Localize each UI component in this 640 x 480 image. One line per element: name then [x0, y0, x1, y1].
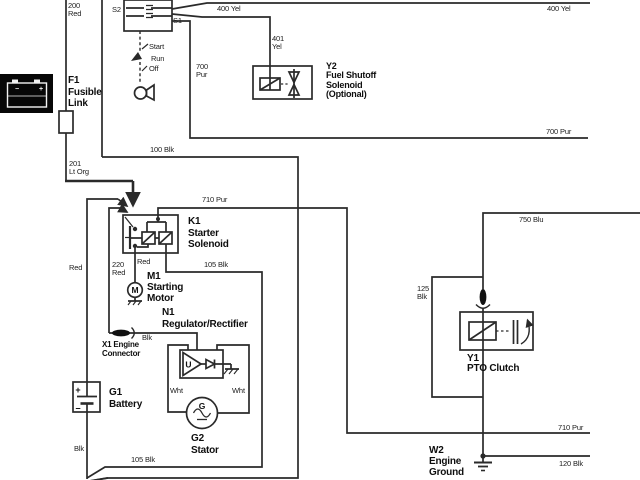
- motor-letter: M: [131, 285, 138, 295]
- label-n1-regulator-rectifier: N1 Regulator/Rectifier: [162, 307, 248, 330]
- ignition-switch-icon: [124, 0, 172, 31]
- wire-125-blk: [432, 277, 483, 397]
- label-wire-wht-right: Wht: [232, 387, 245, 395]
- label-k1-starter-solenoid: K1 Starter Solenoid: [188, 216, 229, 251]
- label-key-start: Start: [149, 43, 164, 51]
- label-wire-220-red: 220 Red: [112, 261, 125, 277]
- label-w2-engine-ground: W2 Engine Ground: [429, 445, 464, 478]
- label-key-off: Off: [149, 65, 158, 73]
- label-y2-fuel-shutoff: Y2 Fuel Shutoff Solenoid (Optional): [326, 62, 376, 100]
- label-wire-750-blu: 750 Blu: [519, 216, 543, 224]
- buzzer-icon: [135, 85, 155, 100]
- label-wire-blk-battery: Blk: [74, 445, 84, 453]
- label-wire-red-battery: Red: [69, 264, 82, 272]
- battery-plus-sign: +: [75, 385, 80, 395]
- label-wire-125-blk: 125 Blk: [417, 285, 429, 301]
- regulator-letter: U: [185, 360, 191, 370]
- photo-minus-sign: −: [15, 86, 19, 93]
- wiring-diagram-svg: M G U + − + −: [0, 0, 640, 480]
- fuse-icon: [59, 111, 73, 133]
- label-g1-battery: G1 Battery: [109, 387, 142, 410]
- wiring-diagram: M G U + − + − 200 Red S2 S1 Start Run Of…: [0, 0, 640, 480]
- label-wire-710-pur-top: 710 Pur: [202, 196, 227, 204]
- photo-plus-sign: +: [39, 86, 43, 93]
- wire-stator-right: [217, 345, 249, 413]
- label-wire-200-red: 200 Red: [68, 2, 81, 18]
- label-wire-400-yel-left: 400 Yel: [217, 5, 241, 13]
- label-y1-pto-clutch: Y1 PTO Clutch: [467, 354, 519, 374]
- wire-700-pur: [172, 21, 588, 138]
- starter-solenoid-icon: [123, 215, 178, 253]
- fuel-solenoid-icon: [253, 66, 312, 99]
- label-wire-400-yel-right: 400 Yel: [547, 5, 571, 13]
- label-wire-105-blk-bottom: 105 Blk: [131, 456, 155, 464]
- label-m1-starting-motor: M1 Starting Motor: [147, 271, 183, 304]
- label-wire-100-blk: 100 Blk: [150, 146, 174, 154]
- battery-photo-icon: [0, 74, 53, 113]
- label-s2: S2: [112, 6, 121, 14]
- label-wire-blk-x1: Blk: [142, 334, 152, 342]
- stator-letter: G: [199, 401, 206, 411]
- label-wire-700-pur-right: 700 Pur: [546, 128, 571, 136]
- label-wire-201-lt-org: 201 Lt Org: [69, 160, 89, 176]
- key-position-line: [131, 31, 148, 84]
- label-wire-red-k1: Red: [137, 258, 150, 266]
- label-wire-105-blk-top: 105 Blk: [204, 261, 228, 269]
- battery-minus-sign: −: [75, 404, 80, 414]
- wire-401-yel: [172, 14, 270, 78]
- label-key-run: Run: [151, 55, 164, 63]
- label-wire-wht-left: Wht: [170, 387, 183, 395]
- wire-blk-battery: [87, 412, 108, 480]
- label-f1-fusible-link: F1 Fusible Link: [68, 75, 102, 110]
- clutch-connector-icon: [476, 289, 490, 308]
- wire-750-blu: [483, 213, 640, 289]
- label-wire-710-pur-bottom: 710 Pur: [558, 424, 583, 432]
- label-wire-401-yel: 401 Yel: [272, 35, 284, 51]
- label-g2-stator: G2 Stator: [191, 433, 219, 456]
- label-wire-700-pur-left: 700 Pur: [196, 63, 208, 79]
- label-wire-120-blk: 120 Blk: [559, 460, 583, 468]
- label-s1: S1: [173, 17, 182, 25]
- label-x1-engine-connector: X1 Engine Connector: [102, 341, 140, 358]
